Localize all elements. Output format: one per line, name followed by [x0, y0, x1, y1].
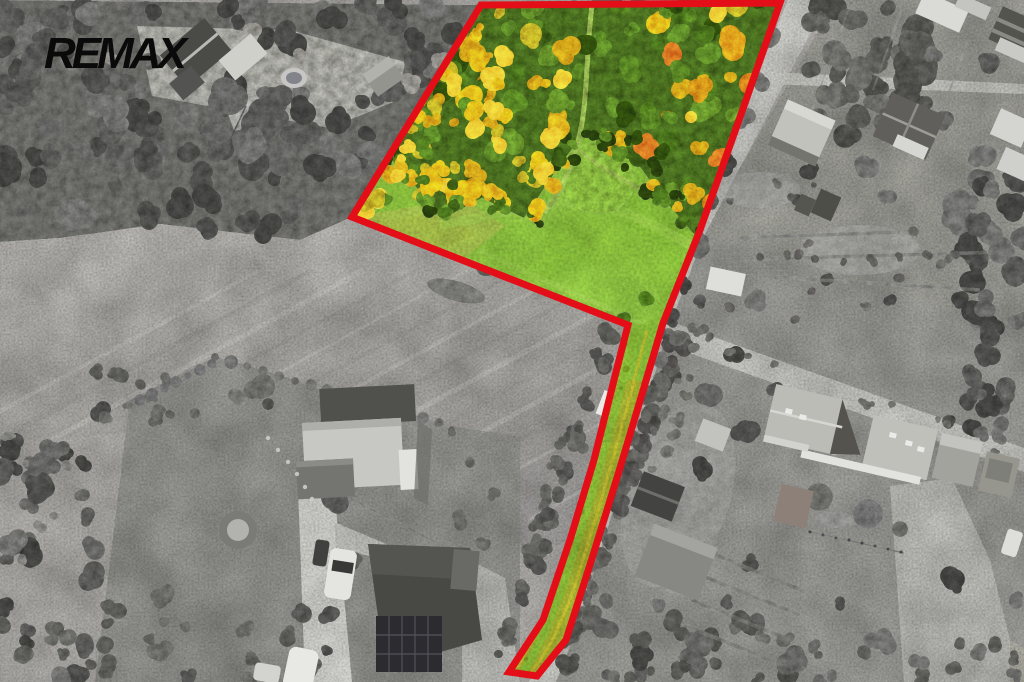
svg-text:REMAX: REMAX — [44, 29, 190, 78]
